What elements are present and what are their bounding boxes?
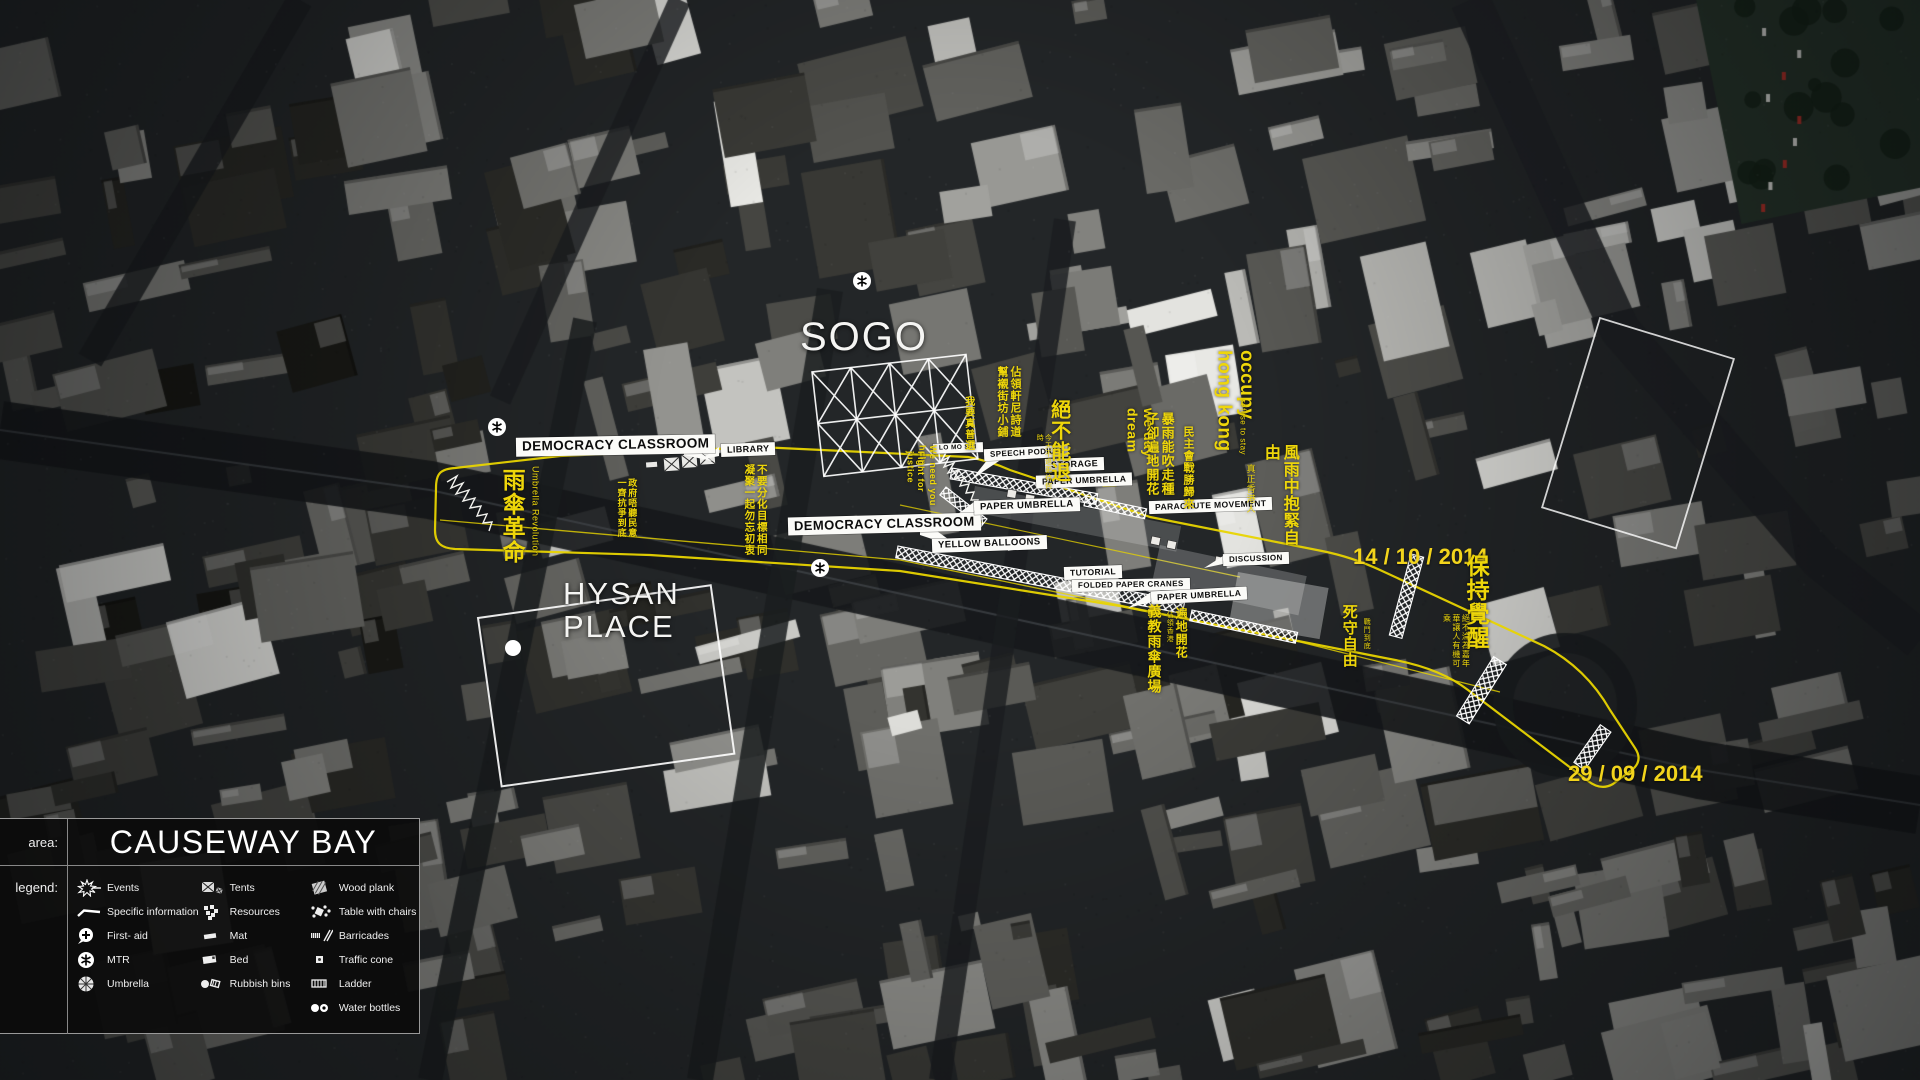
slogan-bloom-everywhere: 遍地開花: [1174, 607, 1188, 661]
legend-item-tents: Tents: [199, 876, 308, 900]
panel-header: area: CAUSEWAY BAY: [0, 819, 419, 866]
ladder-icon: [308, 975, 334, 993]
slogan-bloom-everywhere-sub: 佔領香港: [1165, 611, 1173, 643]
ne-building-outline: [1542, 318, 1734, 548]
callout-tutorial: TUTORIAL: [1064, 565, 1122, 580]
legend-item-bed: Bed: [199, 948, 308, 972]
bed-icon: [199, 951, 225, 969]
events-icon: [76, 879, 102, 897]
legend-item-label: MTR: [107, 954, 130, 966]
slogan-refuse-to-stay: refuse to stay: [1238, 400, 1247, 462]
first-aid-icon: [76, 927, 102, 945]
legend-item-label: Umbrella: [107, 978, 149, 990]
resources-icon: [199, 903, 225, 921]
legend-column-3: Wood plank Table with chairs Barricades: [308, 876, 417, 1034]
mat-icon: [199, 927, 225, 945]
slogan-stay-awake-sub: 絕不淪為嘉年華讓人有機可乘: [1442, 614, 1470, 674]
slogan-no-division: 不要分化目標相同凝聚一起勿忘初衷: [743, 464, 768, 556]
legend-item-label: Specific information: [107, 906, 199, 918]
slogan-never-retreat-sub: 今天不退更待何時: [1035, 434, 1052, 496]
legend-column-2: Tents Resources Mat: [199, 876, 308, 1034]
slogan-wind-rain-freedom: 風雨中抱緊自由: [1260, 444, 1298, 562]
legend-panel: area: CAUSEWAY BAY legend: Events: [0, 818, 420, 1034]
slogan-fight-for-justice: Fight for justice: [905, 451, 926, 525]
traffic-cone-icon: [308, 951, 334, 969]
water-bottles-icon: [308, 999, 334, 1017]
area-label: area:: [0, 819, 68, 865]
wood-plank-icon: [308, 879, 334, 897]
hysan-line2: PLACE: [563, 611, 680, 644]
legend-item-label: Mat: [230, 930, 248, 942]
legend-item-first-aid: First- aid: [76, 924, 199, 948]
legend-item-label: First- aid: [107, 930, 148, 942]
legend-item-label: Rubbish bins: [230, 978, 291, 990]
legend-item-label: Wood plank: [339, 882, 394, 894]
slogan-storm-seeds: 暴雨能吹走種子卻遍地開花: [1144, 412, 1175, 498]
slogan-free-tutoring: 義教雨傘廣場: [1146, 604, 1163, 696]
legend-item-rubbish-bins: Rubbish bins: [199, 972, 308, 996]
legend-item-mtr: MTR: [76, 948, 199, 972]
place-label-sogo: SOGO: [800, 316, 928, 358]
legend-item-label: Traffic cone: [339, 954, 393, 966]
rubbish-bins-icon: [199, 975, 225, 993]
slogan-occupy-hong-kong: occupy hong kong: [1212, 350, 1257, 460]
causeway-bay-occupy-map: SOGO HYSAN PLACE DEMOCRACY CLASSROOM LIB…: [0, 0, 1920, 1080]
barricades-icon: [308, 927, 334, 945]
panel-body: legend: Events Specific information: [0, 866, 419, 1034]
legend-item-label: Water bottles: [339, 1002, 400, 1014]
legend-column-1: Events Specific information First- aid: [76, 876, 199, 1034]
hysan-line1: HYSAN: [563, 578, 680, 611]
slogan-umbrella-revolution-en: Umbrella Revolution: [530, 466, 541, 578]
legend-item-events: Events: [76, 876, 199, 900]
callout-library: LIBRARY: [721, 442, 776, 457]
legend-item-label: Table with chairs: [339, 906, 417, 918]
legend-item-label: Barricades: [339, 930, 389, 942]
slogan-democracy-returns: 民主會戰勝歸來: [1181, 426, 1194, 510]
callout-lo-mo-sai: LO MO SAI: [933, 442, 983, 454]
legend-item-label: Resources: [230, 906, 280, 918]
table-with-chairs-icon: [308, 903, 334, 921]
legend-item-ladder: Ladder: [308, 972, 417, 996]
slogan-defend-freedom-sub: 戰鬥到底: [1362, 618, 1370, 652]
specific-information-icon: [76, 903, 102, 921]
slogan-true-suffrage: 我要真普選: [962, 396, 974, 454]
tents-icon: [199, 879, 225, 897]
legend-item-umbrella: Umbrella: [76, 972, 199, 996]
legend-item-table-with-chairs: Table with chairs: [308, 900, 417, 924]
legend-item-label: Ladder: [339, 978, 372, 990]
legend-item-barricades: Barricades: [308, 924, 417, 948]
sogo-roof-outline: [812, 354, 978, 476]
callout-democracy-classroom-1: DEMOCRACY CLASSROOM: [516, 434, 716, 456]
legend-item-water-bottles: Water bottles: [308, 996, 417, 1020]
legend-item-label: Tents: [230, 882, 255, 894]
legend-item-resources: Resources: [199, 900, 308, 924]
legend-item-wood-plank: Wood plank: [308, 876, 417, 900]
mtr-icon: [76, 951, 102, 969]
place-label-hysan: HYSAN PLACE: [563, 578, 680, 643]
legend-item-label: Bed: [230, 954, 249, 966]
legend-item-label: Events: [107, 882, 139, 894]
legend-item-mat: Mat: [199, 924, 308, 948]
slogan-true-hongkonger: 真正香港人: [1245, 464, 1256, 516]
slogan-umbrella-revolution-cn: 雨傘革命: [498, 468, 525, 572]
hysan-dot-icon: [505, 640, 521, 656]
area-title: CAUSEWAY BAY: [68, 819, 419, 865]
umbrella-icon: [76, 975, 102, 993]
slogan-hennessy-shops: 佔領軒尼詩道幫襯街坊小鋪: [995, 366, 1021, 442]
slogan-defend-freedom: 死守自由: [1340, 604, 1358, 672]
legend-item-specific-information: Specific information: [76, 900, 199, 924]
legend-item-traffic-cone: Traffic cone: [308, 948, 417, 972]
slogan-protest-together: 政府唔聽民意一齊抗爭到底: [616, 478, 637, 540]
date-start: 29 / 09 / 2014: [1568, 761, 1703, 787]
legend-label: legend:: [0, 866, 68, 1034]
